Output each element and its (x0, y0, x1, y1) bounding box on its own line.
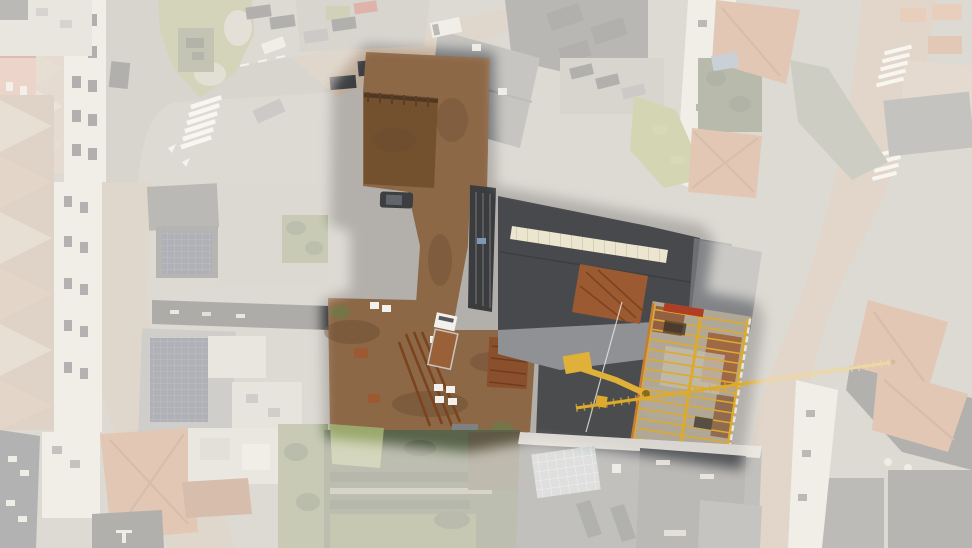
fade-overlay (0, 0, 972, 548)
aerial-photo-canvas (0, 0, 972, 548)
aerial-photo-construction-site (0, 0, 972, 548)
